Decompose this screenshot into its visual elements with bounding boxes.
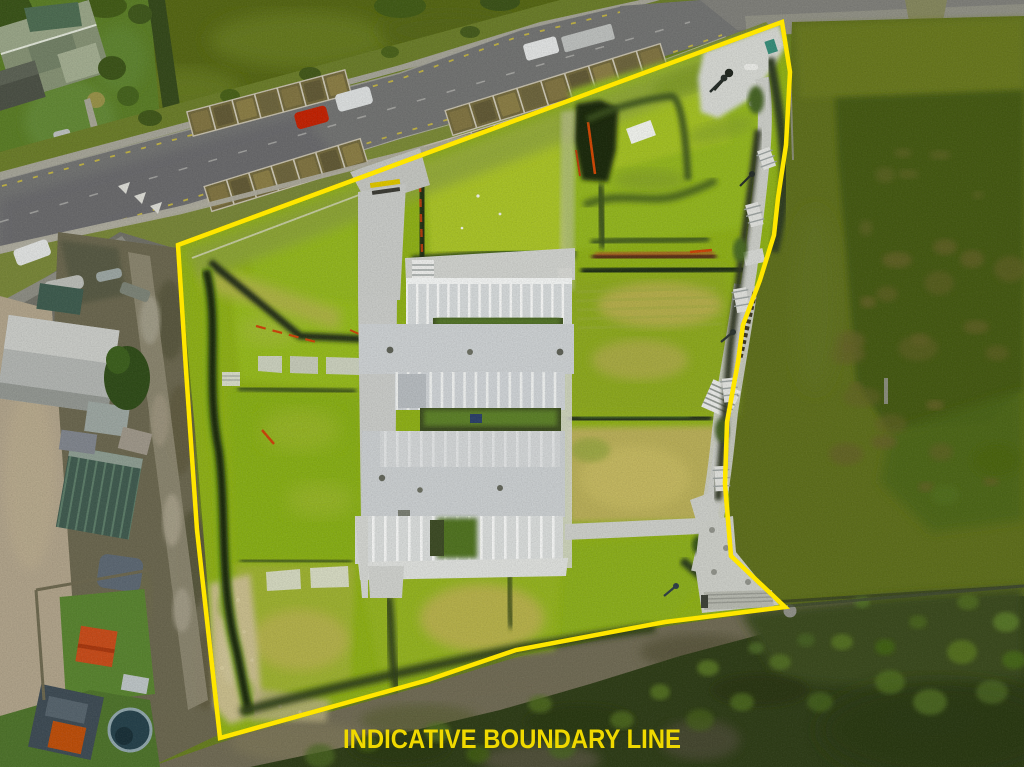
svg-text:INDICATIVE BOUNDARY LINE: INDICATIVE BOUNDARY LINE bbox=[343, 724, 681, 754]
